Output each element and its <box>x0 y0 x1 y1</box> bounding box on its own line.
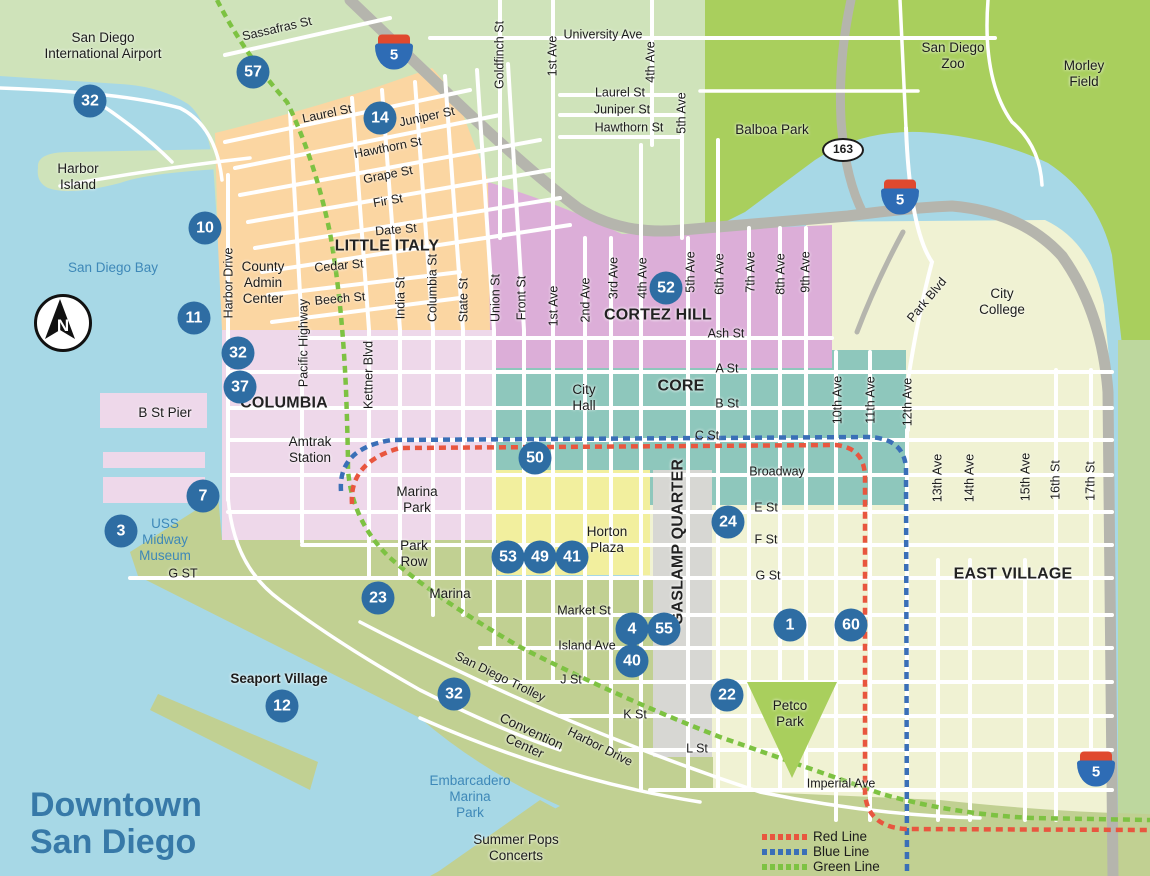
map-marker-1[interactable]: 1 <box>774 609 807 642</box>
map-geometry <box>0 0 1150 876</box>
map-marker-14[interactable]: 14 <box>364 102 397 135</box>
map-marker-32[interactable]: 32 <box>222 337 255 370</box>
route-163-shield: 163 <box>822 138 864 162</box>
trolley-legend: Red LineBlue LineGreen Line <box>762 829 880 874</box>
north-compass: N <box>34 294 92 352</box>
map-marker-49[interactable]: 49 <box>524 541 557 574</box>
map-marker-40[interactable]: 40 <box>616 645 649 678</box>
red-line-label: Red Line <box>813 829 867 844</box>
map-marker-41[interactable]: 41 <box>556 541 589 574</box>
green-line-label: Green Line <box>813 859 880 874</box>
north-label: N <box>57 316 69 336</box>
map-marker-11[interactable]: 11 <box>178 302 211 335</box>
map-marker-10[interactable]: 10 <box>189 212 222 245</box>
map-marker-57[interactable]: 57 <box>237 56 270 89</box>
legend-item-blue-line: Blue Line <box>762 844 880 859</box>
region-east-of-freeway <box>1118 340 1150 876</box>
map-marker-23[interactable]: 23 <box>362 582 395 615</box>
map-marker-7[interactable]: 7 <box>187 480 220 513</box>
map-marker-4[interactable]: 4 <box>616 613 649 646</box>
interstate-5-shield: 5 <box>881 180 919 215</box>
map-title: Downtown San Diego <box>30 787 202 862</box>
blue-line-swatch-icon <box>762 849 808 855</box>
downtown-san-diego-map: N Downtown San Diego Red LineBlue LineGr… <box>0 0 1150 876</box>
map-marker-60[interactable]: 60 <box>835 609 868 642</box>
map-marker-55[interactable]: 55 <box>648 613 681 646</box>
legend-item-red-line: Red Line <box>762 829 880 844</box>
green-line-swatch-icon <box>762 864 808 870</box>
map-marker-37[interactable]: 37 <box>224 371 257 404</box>
map-marker-53[interactable]: 53 <box>492 541 525 574</box>
map-marker-32[interactable]: 32 <box>438 678 471 711</box>
interstate-5-shield: 5 <box>1077 752 1115 787</box>
legend-item-green-line: Green Line <box>762 859 880 874</box>
blue-line-label: Blue Line <box>813 844 869 859</box>
map-marker-52[interactable]: 52 <box>650 272 683 305</box>
map-marker-12[interactable]: 12 <box>266 690 299 723</box>
red-line-swatch-icon <box>762 834 808 840</box>
map-marker-22[interactable]: 22 <box>711 679 744 712</box>
map-marker-32[interactable]: 32 <box>74 85 107 118</box>
map-marker-24[interactable]: 24 <box>712 506 745 539</box>
interstate-5-shield: 5 <box>375 35 413 70</box>
map-marker-3[interactable]: 3 <box>105 515 138 548</box>
map-marker-50[interactable]: 50 <box>519 442 552 475</box>
